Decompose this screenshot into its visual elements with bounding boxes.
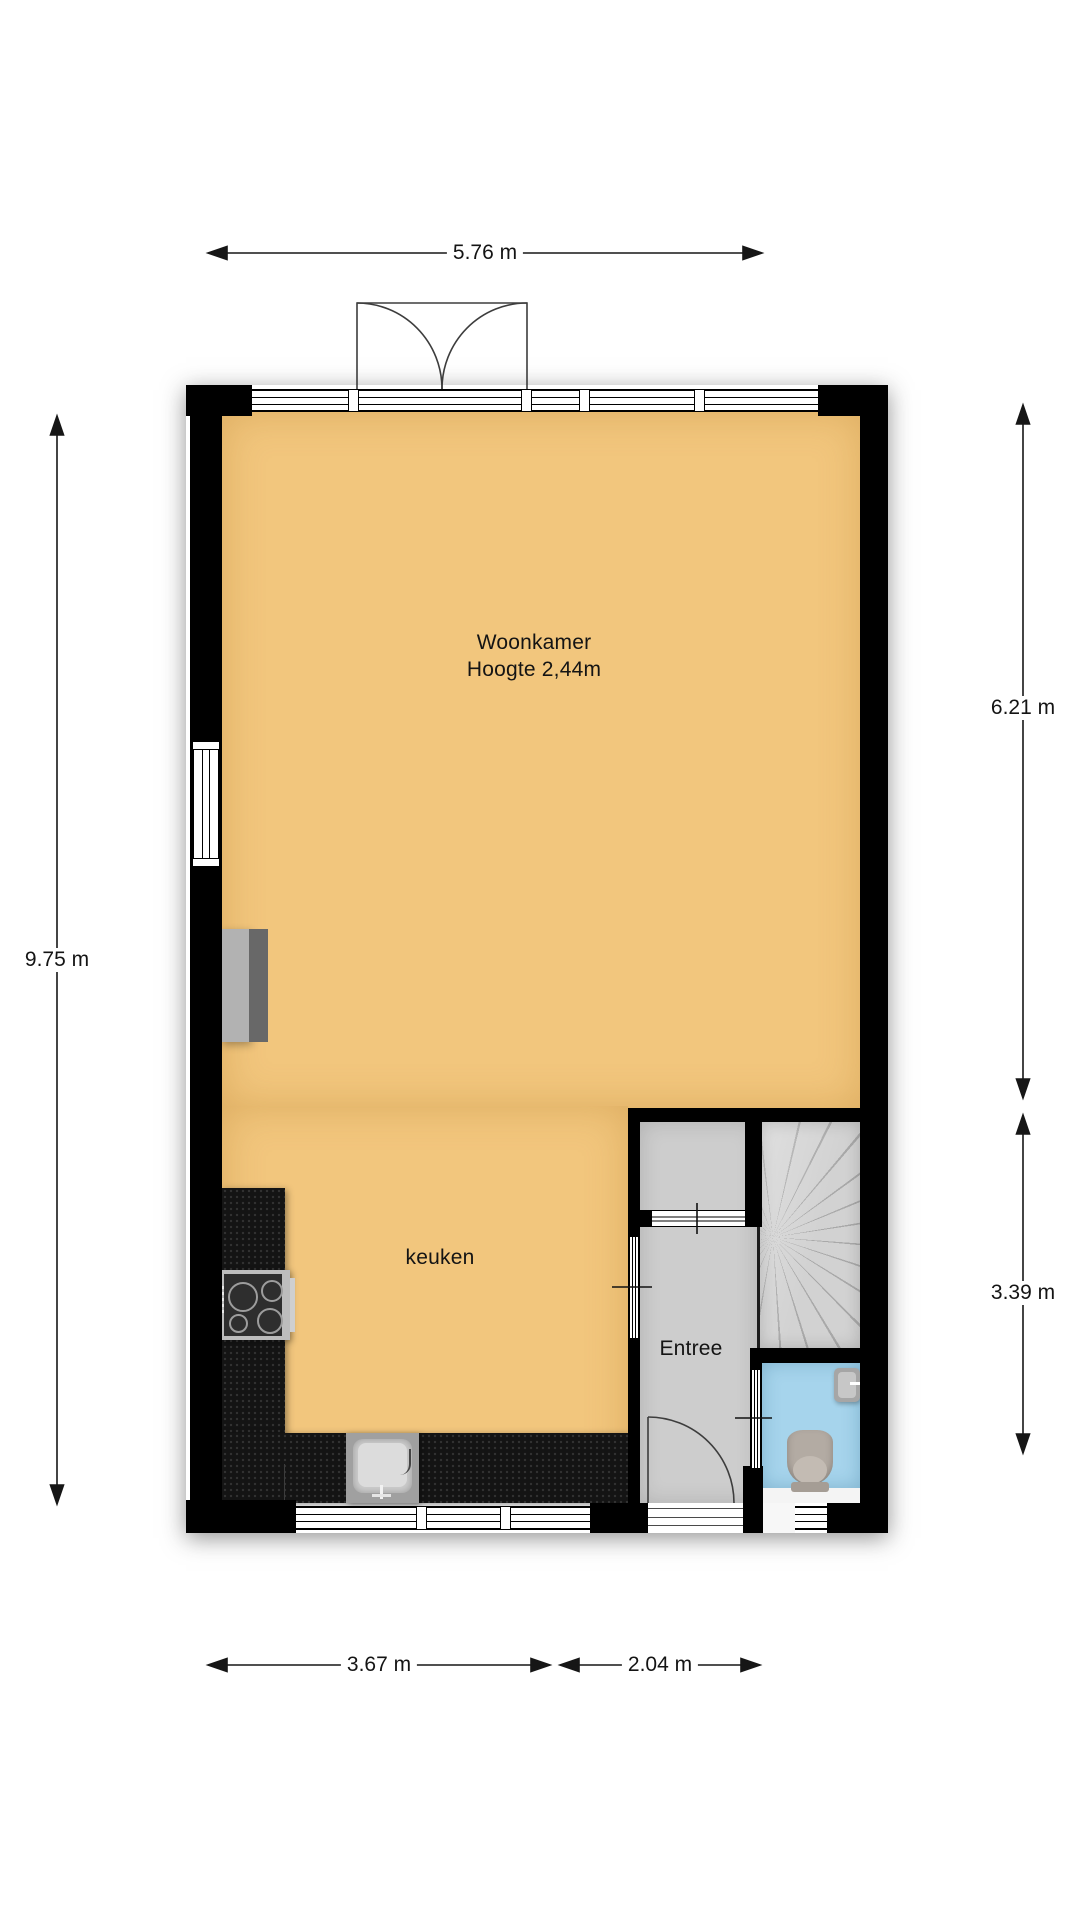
wall-meterkast-left-block [640,1210,652,1227]
wall-corner-top-left [186,385,252,416]
window-top [252,389,818,412]
dimension-label-left: 9.75 m [19,948,95,972]
counter-divider-line [284,1464,285,1500]
wall-right [860,385,888,1533]
dimension-label-bottom-right: 2.04 m [622,1653,698,1677]
window-mullion [521,389,532,412]
dimension-label-right-upper: 6.21 m [985,696,1061,720]
burner-medium2 [257,1308,283,1334]
room-label-woonkamer-height: Hoogte 2,44m [467,658,601,682]
window-glazing [754,1370,758,1468]
cooktop-handle [290,1278,295,1332]
wall-corner-top-right [818,385,888,416]
window-mullion [348,389,359,412]
spiral-stairs [757,1122,860,1348]
room-label-keuken: keuken [406,1246,475,1270]
dimension-label-right-lower: 3.39 m [985,1281,1061,1305]
kitchen-sink [346,1433,419,1503]
window-mullion [416,1506,427,1530]
wall-entree-left-lower [628,1338,640,1503]
kitchen-counter-bottom [222,1433,628,1503]
window-cap [192,858,220,867]
window-glazing [296,1514,590,1522]
wall-toilet-top [750,1348,860,1363]
sink-tap-bar [372,1494,391,1497]
fireplace-dark [249,929,268,1042]
dimension-label-bottom-left: 3.67 m [341,1653,417,1677]
wall-left [190,385,222,1533]
window-meterkast [652,1210,745,1227]
window-entree-left [628,1237,640,1338]
threshold-line [648,1517,743,1518]
toilet-seat [793,1456,827,1484]
floor-plan: Woonkamer Hoogte 2,44m keuken Entree 5.7… [0,0,1080,1920]
window-mullion [500,1506,511,1530]
window-glazing [202,743,210,865]
window-cap [192,741,220,750]
hand-basin-inner [838,1372,856,1398]
window-glazing [252,397,818,405]
wall-toilet-left-upper [750,1348,762,1370]
window-glazing [632,1237,636,1338]
wall-bottom-segment [590,1503,648,1533]
window-toilet [795,1506,827,1530]
toilet-base [791,1482,829,1492]
burner-small [229,1314,248,1333]
wall-corner-bottom-right [827,1503,888,1533]
double-door [357,303,527,389]
burner-large [228,1282,258,1312]
fireplace-light [220,929,249,1042]
toilet-fixture [787,1430,833,1494]
dimension-label-top: 5.76 m [447,241,523,265]
front-door-threshold [648,1508,743,1526]
window-left [192,743,220,865]
window-mullion [579,389,590,412]
window-toilet-left [750,1370,762,1468]
wall-bottom-gap [763,1503,795,1533]
cooktop [219,1270,290,1340]
wall-toilet-left-lower [750,1468,762,1503]
room-woonkamer-floor [222,412,862,1108]
burner-medium [261,1280,283,1302]
room-label-woonkamer: Woonkamer [477,631,592,655]
window-glazing [652,1216,745,1221]
wall-stairs-left [745,1118,762,1227]
hand-basin [834,1368,860,1402]
room-label-entree: Entree [659,1337,722,1361]
wall-entree-left-upper [628,1108,640,1237]
window-bottom-kitchen [296,1506,590,1530]
wall-corner-bottom-left [186,1500,296,1533]
window-glazing [795,1514,827,1522]
window-mullion [694,389,705,412]
room-entree-floor [640,1122,757,1503]
